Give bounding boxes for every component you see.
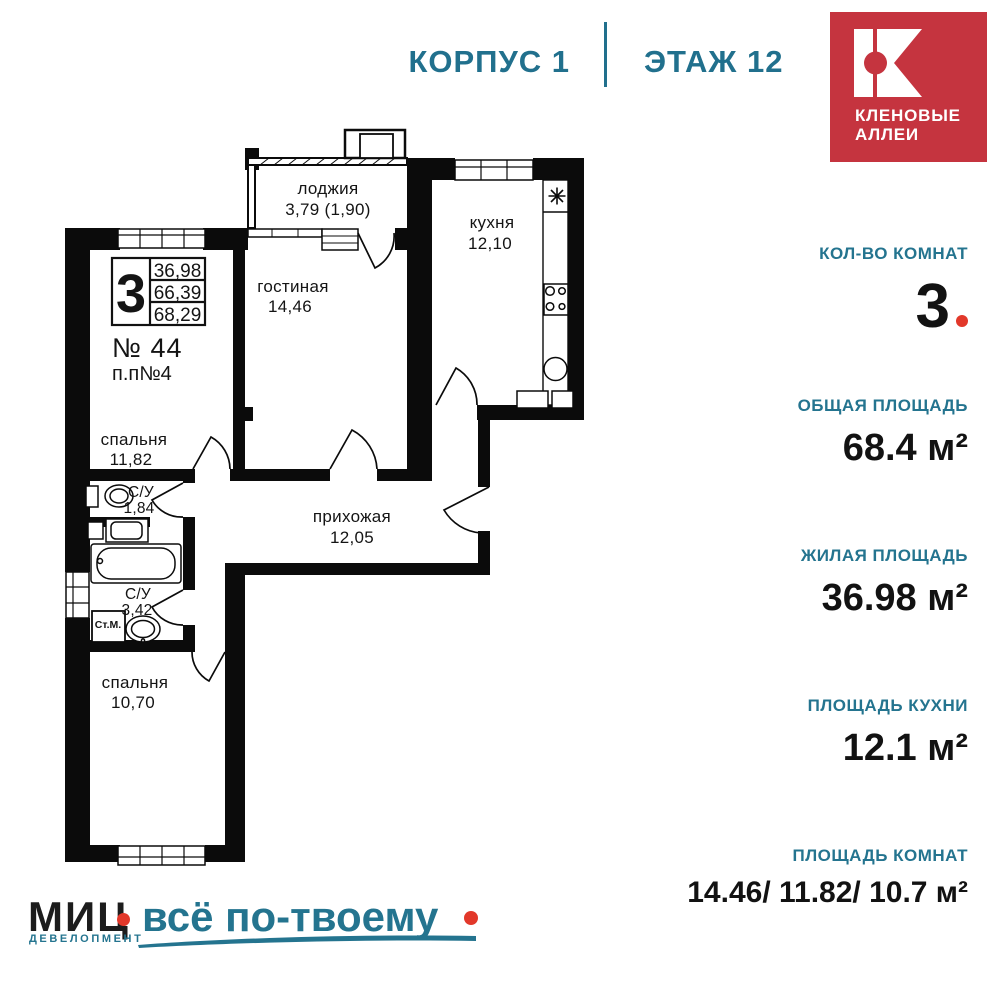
apartment-area-usable: 66,39 bbox=[154, 283, 202, 304]
room-area-living: 14,46 bbox=[268, 297, 312, 316]
room-label-bedroom2: спальня bbox=[102, 673, 169, 692]
room-label-living: гостиная bbox=[257, 277, 329, 296]
room-area-hall: 12,05 bbox=[330, 528, 374, 547]
door-entrance bbox=[444, 487, 489, 533]
stat-rooms-count-label: КОЛ-ВО КОМНАТ bbox=[819, 244, 968, 264]
brand-name-line1: КЛЕНОВЫЕ bbox=[855, 106, 961, 126]
room-label-wc2: С/У bbox=[125, 586, 151, 603]
room-area-bedroom1: 11,82 bbox=[110, 450, 153, 469]
stat-living-area-label: ЖИЛАЯ ПЛОЩАДЬ bbox=[801, 546, 968, 566]
toilet-icon bbox=[86, 486, 98, 507]
room-label-kitchen: кухня bbox=[470, 213, 515, 232]
washbasin-icon bbox=[88, 522, 103, 539]
door-living bbox=[330, 430, 377, 469]
stat-rooms-areas: ПЛОЩАДЬ КОМНАТ 14.46/ 11.82/ 10.7 м² bbox=[687, 846, 968, 908]
door-bedroom1 bbox=[193, 437, 230, 469]
room-label-loggia: лоджия bbox=[298, 179, 359, 198]
door-wc2 bbox=[152, 590, 183, 625]
stat-total-area: ОБЩАЯ ПЛОЩАДЬ 68.4 м² bbox=[798, 396, 968, 467]
room-area-loggia: 3,79 (1,90) bbox=[285, 200, 371, 219]
stat-kitchen-area: ПЛОЩАДЬ КУХНИ 12.1 м² bbox=[808, 696, 968, 767]
doors bbox=[152, 233, 489, 681]
door-balcony bbox=[358, 233, 394, 268]
header-floor-label: ЭТАЖ 12 bbox=[644, 44, 784, 80]
kitchen-sink-icon bbox=[544, 358, 567, 381]
stat-kitchen-area-label: ПЛОЩАДЬ КУХНИ bbox=[808, 696, 968, 716]
developer-division-label: ДЕВЕЛОПМЕНТ bbox=[29, 933, 143, 945]
stat-living-area: ЖИЛАЯ ПЛОЩАДЬ 36.98 м² bbox=[801, 546, 968, 617]
washing-machine-label: Ст.М. bbox=[95, 619, 121, 631]
slogan-underline bbox=[136, 932, 478, 948]
brand-logo: КЛЕНОВЫЕ АЛЛЕИ bbox=[830, 12, 987, 162]
room-area-bedroom2: 10,70 bbox=[111, 693, 155, 712]
apartment-plan-code: п.п№4 bbox=[112, 363, 172, 385]
red-dot bbox=[117, 913, 130, 926]
apartment-rooms-count: 3 bbox=[116, 264, 146, 324]
apartment-number: № 44 bbox=[112, 333, 183, 363]
door-kitchen bbox=[436, 368, 477, 405]
brand-name-line2: АЛЛЕИ bbox=[855, 125, 919, 145]
kitchen-cabinet bbox=[517, 391, 548, 408]
stat-total-area-label: ОБЩАЯ ПЛОЩАДЬ bbox=[798, 396, 968, 416]
red-dot bbox=[956, 315, 968, 327]
stat-kitchen-area-value: 12.1 м² bbox=[808, 729, 968, 767]
apartment-area-living: 36,98 bbox=[154, 261, 202, 282]
brand-k-icon bbox=[854, 29, 922, 97]
door-bedroom2 bbox=[192, 652, 225, 681]
room-area-wc2: 3,42 bbox=[122, 602, 153, 619]
stat-rooms-count: КОЛ-ВО КОМНАТ 3 bbox=[819, 244, 968, 338]
red-dot bbox=[464, 911, 478, 925]
room-area-wc1: 1,84 bbox=[124, 500, 155, 517]
door-wc1 bbox=[152, 483, 183, 517]
floor-plan: 3 36,98 66,39 68,29 № 44 п.п№4 лоджия 3,… bbox=[0, 0, 620, 880]
room-area-kitchen: 12,10 bbox=[468, 234, 512, 253]
room-label-hall: прихожая bbox=[313, 507, 391, 526]
page: КОРПУС 1 ЭТАЖ 12 КЛЕНОВЫЕ АЛЛЕИ bbox=[0, 0, 1000, 1000]
apartment-area-total: 68,29 bbox=[154, 305, 202, 326]
stat-rooms-areas-value: 14.46/ 11.82/ 10.7 м² bbox=[687, 878, 968, 908]
stat-rooms-count-value: 3 bbox=[916, 272, 951, 341]
stat-living-area-value: 36.98 м² bbox=[801, 579, 968, 617]
stat-rooms-areas-label: ПЛОЩАДЬ КОМНАТ bbox=[687, 846, 968, 866]
stat-total-area-value: 68.4 м² bbox=[798, 429, 968, 467]
room-label-wc1: С/У bbox=[128, 484, 154, 501]
room-label-bedroom1: спальня bbox=[101, 430, 168, 449]
kitchen-cabinet bbox=[552, 391, 573, 408]
